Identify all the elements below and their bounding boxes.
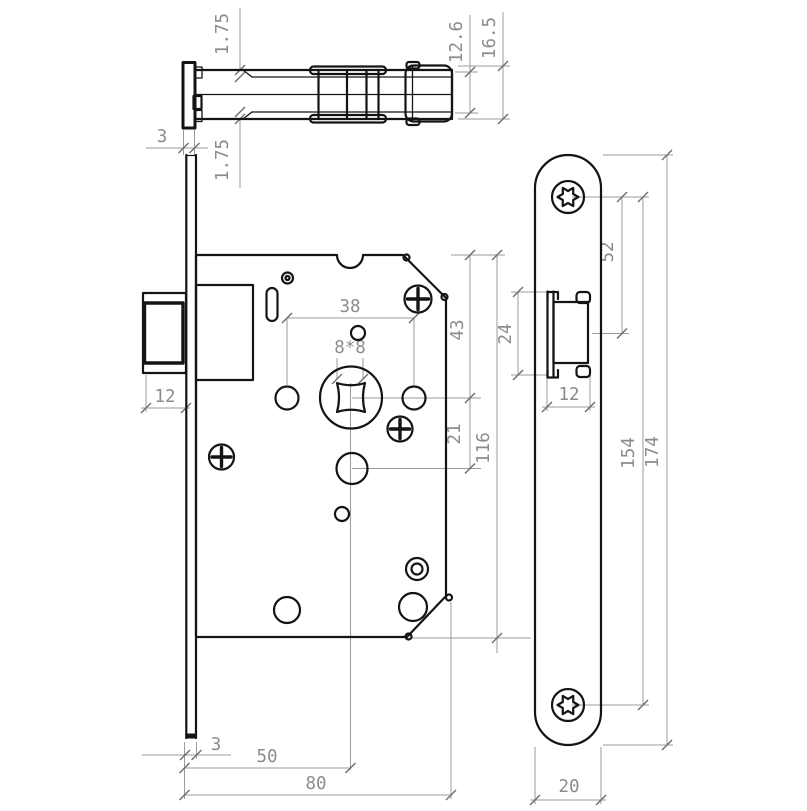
dim-bevel-bottom: 1.75 — [213, 139, 233, 181]
dim-plate-width: 20 — [558, 777, 579, 797]
phillips-screw-mid — [388, 417, 413, 442]
phillips-screw-top-right — [405, 286, 432, 313]
dim-side-bolt-width: 12 — [558, 385, 579, 405]
top-view-latch-bolt — [183, 62, 452, 128]
front-view-lock-case — [143, 155, 452, 739]
dim-bevel-top: 1.75 — [213, 13, 233, 55]
dim-backset: 50 — [256, 747, 277, 767]
dim-spindle-square: 8*8 — [334, 338, 366, 358]
latch-bolt — [143, 293, 186, 373]
dim-faceplate-thickness-top: 3 — [157, 127, 168, 147]
dim-bolt-height: 12.6 — [447, 21, 467, 63]
faceplate-outline — [535, 155, 601, 745]
bottom-hole-right — [399, 593, 427, 621]
side-view-faceplate — [535, 155, 601, 745]
small-bold-ring — [335, 507, 349, 521]
cylinder-screw-hole — [406, 558, 428, 580]
dim-side-bolt-height: 24 — [496, 323, 516, 344]
dim-case-depth: 80 — [305, 774, 326, 794]
technical-drawing-canvas: 1.75 1.75 3 12.6 16.5 — [0, 0, 807, 811]
latch-bolt-front — [548, 292, 591, 378]
dim-top-to-spindle: 43 — [448, 319, 468, 340]
dim-screw-spacing: 154 — [619, 437, 639, 469]
torx-screw-bottom — [552, 689, 584, 721]
dim-bolt-protrusion: 12 — [154, 387, 175, 407]
slot-hole — [267, 288, 278, 321]
bolt-housing — [196, 285, 253, 380]
dim-case-height: 116 — [474, 432, 494, 464]
torx-screw-top — [552, 181, 584, 213]
dim-plate-length: 174 — [643, 436, 663, 468]
dim-faceplate-thickness-bottom: 3 — [211, 735, 222, 755]
dim-overall-height: 16.5 — [480, 17, 500, 59]
dim-spindle-to-follower: 21 — [445, 423, 465, 444]
bottom-hole-left — [274, 597, 300, 623]
rivet-ring — [282, 273, 293, 284]
phillips-screw-left — [209, 445, 234, 470]
dim-handle-hole-spacing: 38 — [339, 297, 360, 317]
handle-screw-hole-left — [276, 387, 299, 410]
front-view-dimensions: 38 8*8 43 21 116 12 3 50 — [141, 250, 531, 800]
case-outline — [196, 255, 446, 637]
